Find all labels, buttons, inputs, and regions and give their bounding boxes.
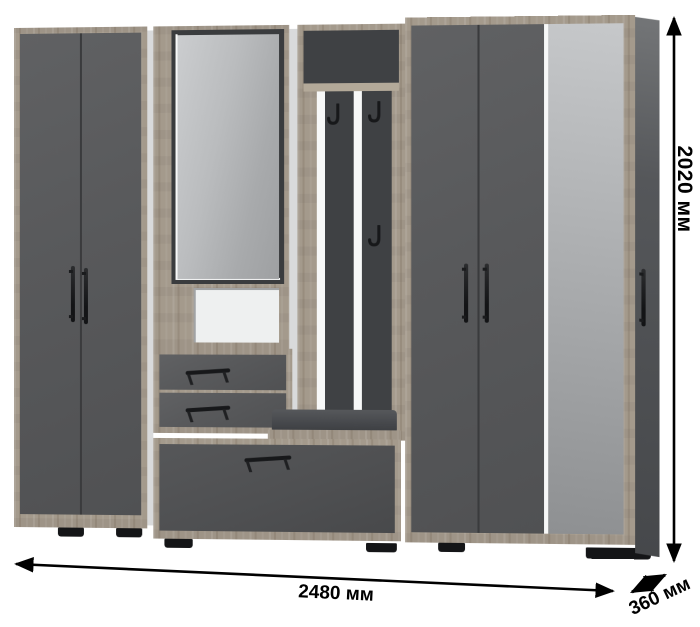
dimension-arrows bbox=[0, 0, 700, 616]
height-dimension-label: 2020 мм bbox=[672, 139, 696, 239]
product-dimension-diagram: { "diagram": { "subject": "hallway-wardr… bbox=[0, 0, 700, 616]
